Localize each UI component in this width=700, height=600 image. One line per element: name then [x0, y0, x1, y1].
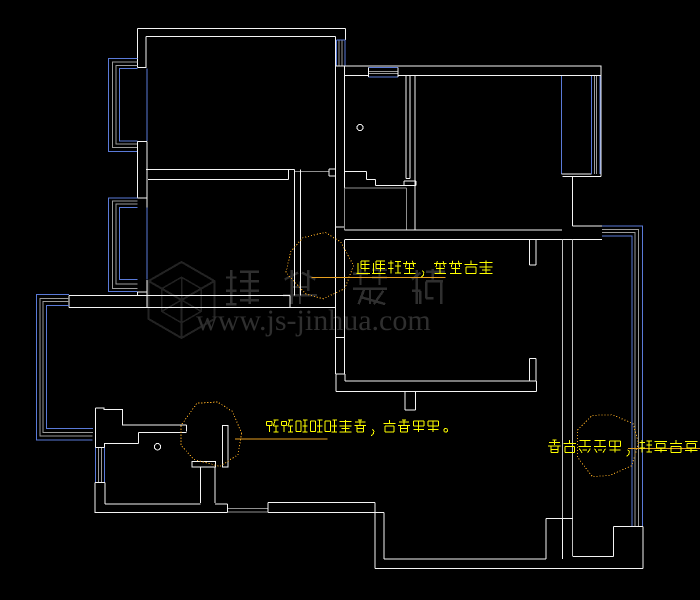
svg-text:www.js-jinhua.com: www.js-jinhua.com — [196, 304, 431, 337]
